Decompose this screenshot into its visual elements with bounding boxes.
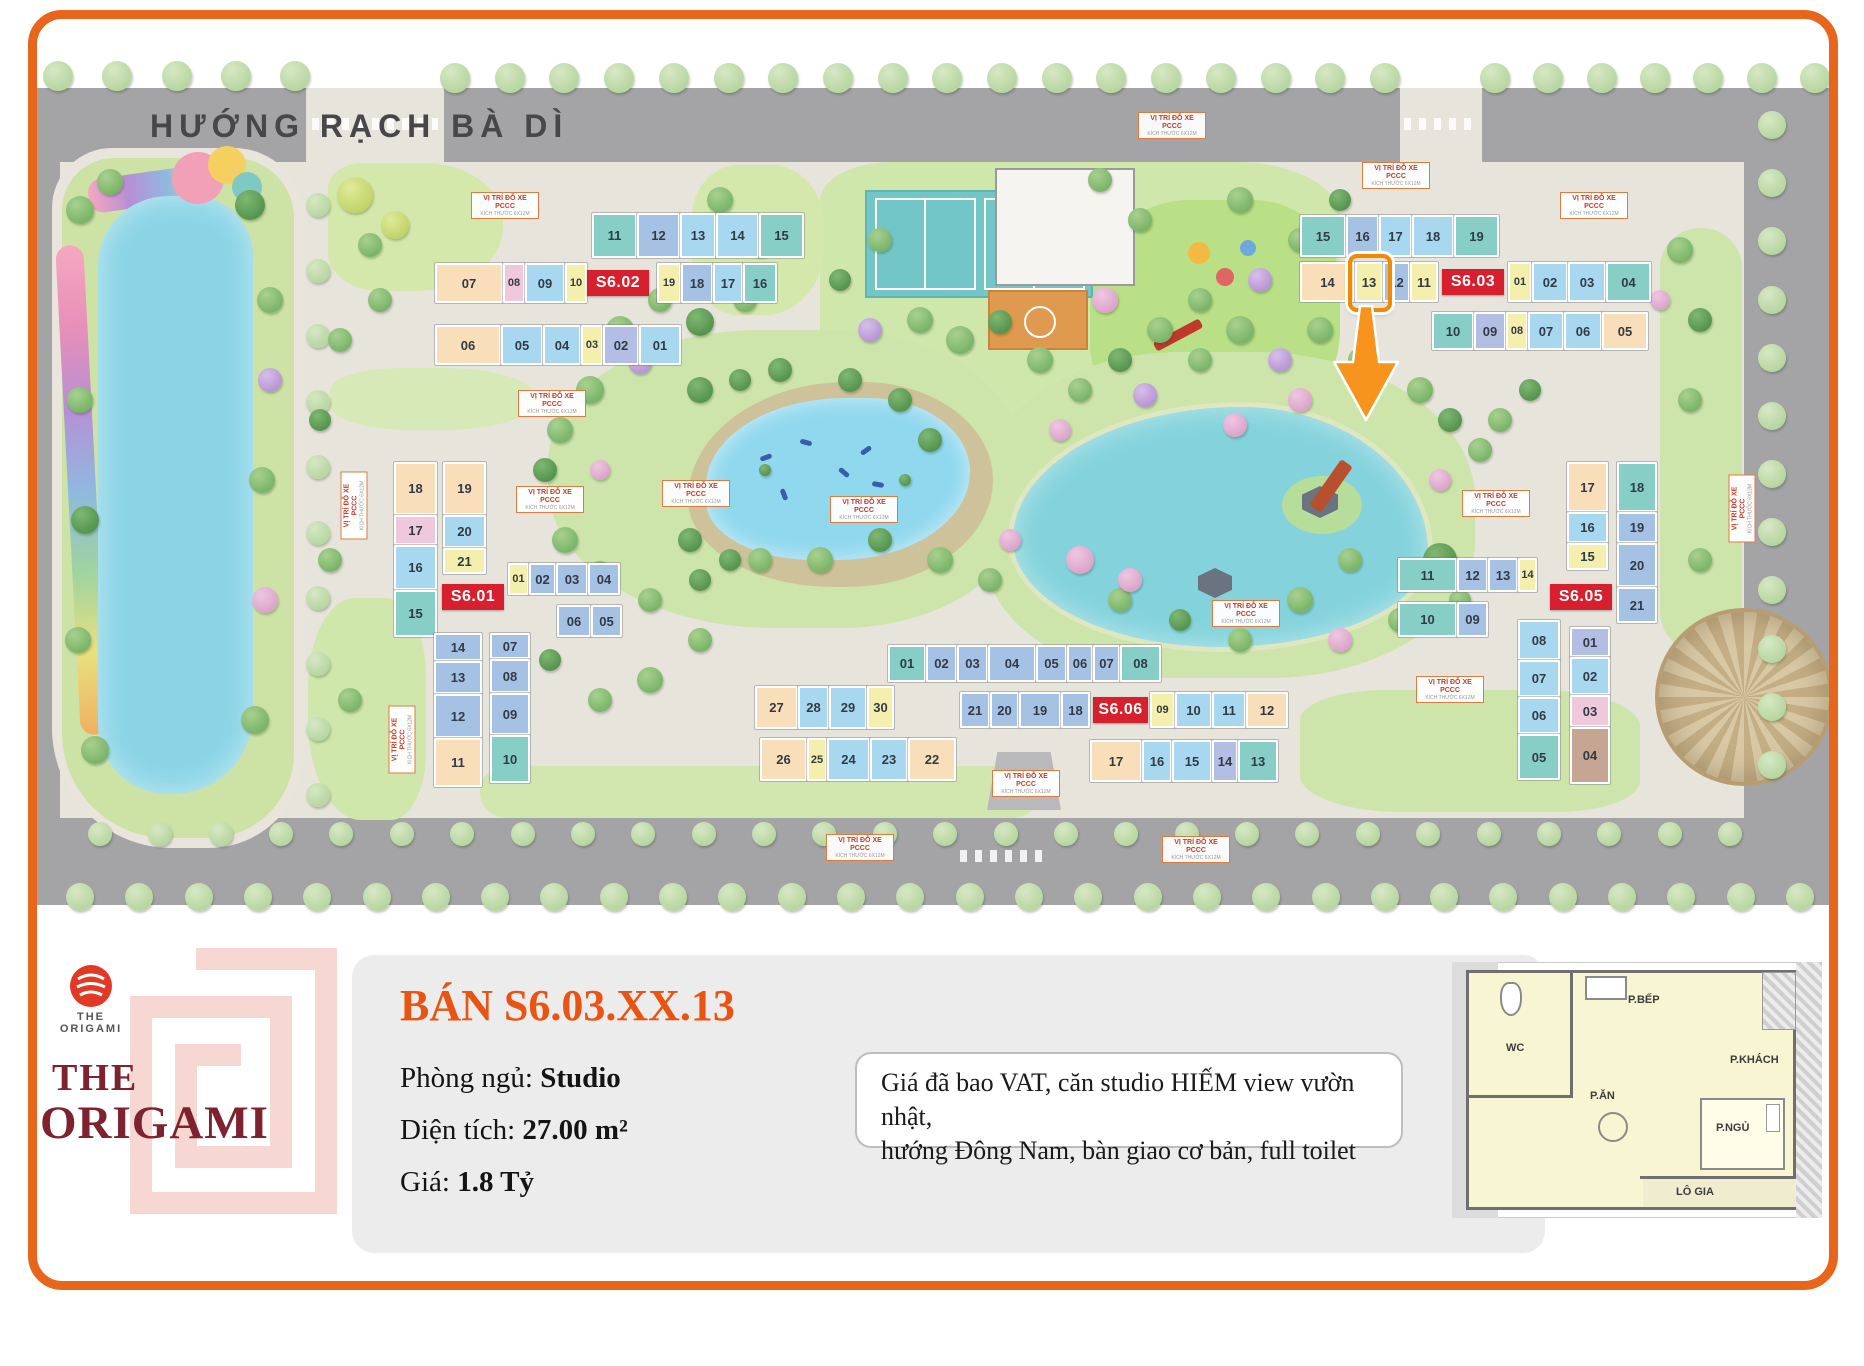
tree-icon [1678, 388, 1702, 412]
unit-cell-S6.05-11[interactable]: 11 [1398, 558, 1457, 592]
tree-icon [1147, 317, 1173, 343]
tree-icon [1786, 883, 1814, 911]
tree-icon [539, 649, 561, 671]
tree-icon [511, 822, 535, 846]
unit-cell-S6.01-05[interactable]: 05 [591, 605, 622, 637]
unit-cell-S6.01-15[interactable]: 15 [394, 590, 437, 637]
unit-cell-S6.05-10[interactable]: 10 [1398, 602, 1457, 637]
unit-cell-S6.02-18[interactable]: 18 [681, 263, 713, 303]
unit-cell-S6.01-17[interactable]: 17 [394, 515, 437, 545]
field-bedrooms: Phòng ngủ: Studio [400, 1062, 621, 1095]
unit-cell-S6.06-05[interactable]: 05 [1036, 645, 1067, 682]
unit-cell-S6.06-24[interactable]: 24 [827, 738, 870, 781]
unit-cell-S6.06-02[interactable]: 02 [926, 645, 957, 682]
tree-icon [604, 63, 634, 93]
unit-cell-S6.03-04[interactable]: 04 [1606, 262, 1651, 302]
tree-icon [600, 883, 628, 911]
tree-icon [1800, 63, 1830, 93]
unit-cell-S6.01-20[interactable]: 20 [443, 515, 486, 548]
flowering-tree-icon [590, 460, 610, 480]
tree-icon [306, 652, 330, 676]
tree-icon [692, 822, 716, 846]
unit-cell-S6.05-18[interactable]: 18 [1617, 462, 1657, 512]
unit-cell-S6.05-07[interactable]: 07 [1518, 660, 1560, 697]
unit-cell-S6.06-06[interactable]: 06 [1067, 645, 1093, 682]
tree-icon [1015, 883, 1043, 911]
unit-cell-S6.01-13[interactable]: 13 [434, 661, 482, 694]
tree-icon [946, 326, 974, 354]
unit-cell-S6.06-23[interactable]: 23 [870, 738, 908, 781]
tree-icon [1667, 237, 1693, 263]
tree-icon [65, 627, 91, 653]
tree-icon [1108, 348, 1132, 372]
tree-icon [1430, 883, 1458, 911]
highlighted-unit-ring[interactable] [1348, 254, 1392, 312]
tree-icon [1088, 168, 1112, 192]
unit-cell-S6.01-03[interactable]: 03 [556, 563, 588, 595]
tree-icon [162, 61, 192, 91]
tree-icon [1758, 751, 1786, 779]
tree-icon [1188, 348, 1212, 372]
tree-icon [97, 169, 123, 195]
tree-icon [1371, 883, 1399, 911]
tree-icon [306, 783, 330, 807]
tree-icon [1042, 63, 1072, 93]
tree-icon [209, 822, 233, 846]
tree-icon [571, 822, 595, 846]
tree-icon [768, 358, 792, 382]
tree-icon [1169, 609, 1191, 631]
tree-icon [638, 588, 662, 612]
unit-cell-S6.05-09[interactable]: 09 [1457, 602, 1488, 637]
unit-cell-S6.03-07[interactable]: 07 [1528, 312, 1564, 350]
tree-icon [689, 569, 711, 591]
park-patch [1660, 228, 1742, 652]
tree-icon [1151, 63, 1181, 93]
flowering-tree-icon [1328, 628, 1352, 652]
unit-cell-S6.05-01[interactable]: 01 [1570, 627, 1610, 657]
flowering-tree-icon [1268, 348, 1292, 372]
unit-cell-S6.05-06[interactable]: 06 [1518, 697, 1560, 734]
tree-icon [1758, 286, 1786, 314]
tree-icon [1074, 883, 1102, 911]
flowering-tree-icon [1288, 388, 1312, 412]
unit-cell-S6.03-01[interactable]: 01 [1508, 262, 1532, 302]
tree-icon [318, 548, 342, 572]
unit-cell-S6.06-01[interactable]: 01 [888, 645, 926, 682]
tree-icon [888, 388, 912, 412]
unit-cell-S6.01-14[interactable]: 14 [434, 633, 482, 661]
tree-icon [1480, 63, 1510, 93]
unit-cell-S6.06-03[interactable]: 03 [957, 645, 988, 682]
pccc-parking-label: VỊ TRÍ ĐỖ XE PCCCKÍCH THƯỚC 6X12M [518, 390, 586, 417]
unit-cell-S6.01-21[interactable]: 21 [443, 548, 486, 574]
unit-cell-S6.06-18[interactable]: 18 [1061, 692, 1090, 728]
flowering-tree-icon [1223, 413, 1247, 437]
unit-cell-S6.03-17[interactable]: 17 [1379, 215, 1412, 257]
field-price-value: 1.8 Tỷ [457, 1166, 534, 1198]
unit-cell-S6.03-05[interactable]: 05 [1602, 312, 1648, 350]
unit-cell-S6.06-20[interactable]: 20 [990, 692, 1019, 728]
field-price: Giá: 1.8 Tỷ [400, 1166, 534, 1199]
tree-icon [718, 883, 746, 911]
tree-icon [328, 328, 352, 352]
tree-icon [748, 548, 772, 572]
tree-icon [637, 667, 663, 693]
unit-cell-S6.05-02[interactable]: 02 [1570, 657, 1610, 695]
tree-icon [440, 63, 470, 93]
tree-icon [1068, 378, 1092, 402]
unit-cell-S6.02-17[interactable]: 17 [713, 263, 743, 303]
unit-cell-S6.05-21[interactable]: 21 [1617, 587, 1657, 623]
tree-icon [1188, 288, 1212, 312]
building-label-S6.03[interactable]: S6.03 [1442, 269, 1504, 295]
tree-icon [1658, 822, 1682, 846]
unit-cell-S6.03-03[interactable]: 03 [1568, 262, 1606, 302]
pccc-parking-label: VỊ TRÍ ĐỖ XE PCCCKÍCH THƯỚC 6X12M [1138, 112, 1206, 139]
unit-cell-S6.02-02[interactable]: 02 [603, 325, 639, 365]
flowering-tree-icon [1650, 290, 1670, 310]
field-area-value: 27.00 m² [522, 1114, 627, 1146]
tree-icon [1758, 169, 1786, 197]
tree-icon [547, 417, 573, 443]
pccc-parking-label: VỊ TRÍ ĐỖ XE PCCCKÍCH THƯỚC 6X12M [341, 472, 368, 540]
tree-icon [241, 706, 269, 734]
tree-icon [358, 233, 382, 257]
tree-icon [1688, 308, 1712, 332]
tree-icon [221, 61, 251, 91]
flowering-tree-icon [1092, 287, 1118, 313]
unit-cell-S6.05-14[interactable]: 14 [1518, 558, 1537, 592]
tree-icon [306, 259, 330, 283]
unit-cell-S6.01-01[interactable]: 01 [508, 563, 529, 595]
tree-icon [714, 63, 744, 93]
unit-cell-S6.06-30[interactable]: 30 [867, 686, 894, 729]
unit-cell-S6.03-09[interactable]: 09 [1474, 312, 1506, 350]
tree-icon [552, 527, 578, 553]
unit-cell-S6.02-13[interactable]: 13 [680, 213, 716, 258]
playground-equipment [1188, 242, 1210, 264]
tree-icon [1667, 883, 1695, 911]
tree-icon [807, 547, 833, 573]
unit-cell-S6.06-22[interactable]: 22 [908, 738, 956, 781]
logo-line-2: ORIGAMI [40, 1096, 269, 1150]
tree-icon [1519, 379, 1541, 401]
unit-cell-S6.02-15[interactable]: 15 [759, 213, 804, 258]
tree-icon [363, 883, 391, 911]
tree-icon [185, 883, 213, 911]
tree-icon [1054, 822, 1078, 846]
unit-cell-S6.06-26[interactable]: 26 [760, 738, 807, 781]
tree-icon [1727, 883, 1755, 911]
unit-cell-S6.01-16[interactable]: 16 [394, 545, 437, 590]
tree-icon [899, 474, 911, 486]
tree-icon [1468, 438, 1492, 462]
unit-cell-S6.06-15[interactable]: 15 [1172, 740, 1212, 782]
flowering-tree-icon [1248, 268, 1272, 292]
tree-icon [269, 822, 293, 846]
building-label-S6.01[interactable]: S6.01 [442, 584, 504, 610]
tree-icon [678, 528, 702, 552]
lake-left [98, 196, 253, 794]
tree-icon [1235, 822, 1259, 846]
unit-cell-S6.01-11[interactable]: 11 [434, 738, 482, 787]
tree-icon [1134, 883, 1162, 911]
tree-icon [1338, 548, 1362, 572]
tree-icon [1348, 348, 1372, 372]
tree-icon [1287, 587, 1313, 613]
crosswalk [960, 850, 1050, 862]
unit-cell-S6.01-06[interactable]: 06 [557, 605, 591, 637]
tree-icon [235, 190, 265, 220]
unit-cell-S6.03-11[interactable]: 11 [1410, 262, 1438, 302]
tree-icon [707, 187, 733, 213]
tree-icon [1128, 208, 1152, 232]
tree-icon [43, 61, 73, 91]
tree-icon [1227, 187, 1253, 213]
tree-icon [306, 193, 330, 217]
unit-cell-S6.03-16[interactable]: 16 [1346, 215, 1379, 257]
unit-cell-S6.01-10[interactable]: 10 [490, 735, 530, 783]
tree-icon [823, 63, 853, 93]
tree-icon [659, 883, 687, 911]
tree-icon [1027, 347, 1053, 373]
unit-cell-S6.03-02[interactable]: 02 [1532, 262, 1568, 302]
tree-icon [688, 628, 712, 652]
unit-cell-S6.06-12[interactable]: 12 [1246, 692, 1288, 728]
unit-cell-S6.02-09[interactable]: 09 [525, 263, 565, 303]
floorplan-room-label: P.NGỦ [1716, 1122, 1749, 1134]
unit-cell-S6.03-08[interactable]: 08 [1506, 312, 1528, 350]
tree-icon [1747, 63, 1777, 93]
tree-icon [309, 409, 331, 431]
pccc-parking-label: VỊ TRÍ ĐỖ XE PCCCKÍCH THƯỚC 6X12M [1362, 162, 1430, 189]
tree-icon [306, 521, 330, 545]
unit-cell-S6.05-20[interactable]: 20 [1617, 543, 1657, 587]
field-area-label: Diện tích: [400, 1114, 515, 1146]
unit-cell-S6.05-15[interactable]: 15 [1567, 543, 1608, 570]
field-area: Diện tích: 27.00 m² [400, 1114, 628, 1147]
field-bedrooms-value: Studio [540, 1062, 621, 1094]
tree-icon [495, 63, 525, 93]
tree-icon [280, 61, 310, 91]
tree-icon [1758, 111, 1786, 139]
building-label-S6.06[interactable]: S6.06 [1093, 697, 1148, 723]
tree-icon [81, 736, 109, 764]
unit-cell-S6.06-11[interactable]: 11 [1212, 692, 1246, 728]
tree-icon [837, 883, 865, 911]
floorplan-room-label: P.ĂN [1590, 1090, 1615, 1102]
tree-icon [729, 369, 751, 391]
tree-icon [1407, 377, 1433, 403]
tree-icon [1370, 63, 1400, 93]
tree-icon [1758, 402, 1786, 430]
tree-icon [1438, 408, 1462, 432]
clubhouse-footprint [995, 168, 1135, 286]
unit-cell-S6.05-12[interactable]: 12 [1457, 558, 1488, 592]
pccc-parking-label: VỊ TRÍ ĐỖ XE PCCCKÍCH THƯỚC 6X12M [1162, 836, 1230, 863]
unit-cell-S6.03-15[interactable]: 15 [1300, 215, 1346, 257]
unit-cell-S6.05-19[interactable]: 19 [1617, 512, 1657, 543]
tree-icon [67, 387, 93, 413]
tree-icon [1226, 316, 1254, 344]
unit-cell-S6.06-19[interactable]: 19 [1019, 692, 1061, 728]
unit-cell-S6.05-08[interactable]: 08 [1518, 620, 1560, 660]
unit-cell-S6.02-07[interactable]: 07 [435, 263, 503, 303]
tree-icon [1261, 63, 1291, 93]
note-box: Giá đã bao VAT, căn studio HIẾM view vườ… [855, 1052, 1403, 1148]
dome-structure [1655, 608, 1833, 786]
tree-icon [752, 822, 776, 846]
unit-cell-S6.06-21[interactable]: 21 [960, 692, 990, 728]
tree-icon [778, 883, 806, 911]
pccc-parking-label: VỊ TRÍ ĐỖ XE PCCCKÍCH THƯỚC 6X12M [389, 706, 416, 774]
unit-cell-S6.02-12[interactable]: 12 [637, 213, 680, 258]
floorplan-room-label: LÔ GIA [1676, 1186, 1714, 1198]
unit-cell-S6.01-12[interactable]: 12 [434, 694, 482, 738]
flowering-tree-icon [258, 368, 282, 392]
floorplan-room-label: WC [1506, 1042, 1524, 1054]
crosswalk [1404, 118, 1478, 130]
tree-icon [1206, 63, 1236, 93]
unit-cell-S6.06-10[interactable]: 10 [1175, 692, 1212, 728]
unit-cell-S6.06-27[interactable]: 27 [755, 686, 798, 729]
field-bedrooms-label: Phòng ngủ: [400, 1062, 533, 1094]
building-label-S6.05[interactable]: S6.05 [1550, 584, 1612, 610]
tree-icon [719, 549, 741, 571]
unit-cell-S6.06-09[interactable]: 09 [1150, 692, 1175, 728]
unit-cell-S6.05-17[interactable]: 17 [1567, 462, 1608, 512]
unit-cell-S6.05-16[interactable]: 16 [1567, 512, 1608, 543]
tree-icon [1489, 883, 1517, 911]
floorplan-room-label: P.KHÁCH [1730, 1054, 1779, 1066]
unit-cell-S6.02-05[interactable]: 05 [501, 325, 543, 365]
flowering-tree-icon [1118, 568, 1142, 592]
unit-cell-S6.01-08[interactable]: 08 [490, 659, 530, 693]
tree-icon [588, 688, 612, 712]
unit-cell-S6.05-04[interactable]: 04 [1570, 727, 1610, 784]
unit-cell-S6.06-07[interactable]: 07 [1093, 645, 1120, 682]
tree-icon [71, 506, 99, 534]
unit-cell-S6.03-19[interactable]: 19 [1454, 215, 1499, 257]
unit-cell-S6.06-25[interactable]: 25 [807, 738, 827, 781]
unit-cell-S6.03-14[interactable]: 14 [1300, 262, 1355, 302]
tree-icon [687, 377, 713, 403]
playground-equipment [1240, 240, 1256, 256]
unit-cell-S6.02-16[interactable]: 16 [743, 263, 777, 303]
tree-icon [1549, 883, 1577, 911]
tree-icon [759, 464, 771, 476]
tree-icon [987, 63, 1017, 93]
unit-cell-S6.03-06[interactable]: 06 [1564, 312, 1602, 350]
tree-icon [481, 883, 509, 911]
pccc-parking-label: VỊ TRÍ ĐỖ XE PCCCKÍCH THƯỚC 6X12M [1560, 192, 1628, 219]
tree-icon [1758, 344, 1786, 372]
flowering-tree-icon [252, 587, 278, 613]
tree-icon [1758, 460, 1786, 488]
listing-title: BÁN S6.03.XX.13 [400, 980, 735, 1031]
unit-cell-S6.06-29[interactable]: 29 [829, 686, 867, 729]
basketball-court-circle [1024, 306, 1056, 338]
flowering-tree-icon [1066, 546, 1094, 574]
tree-icon [988, 310, 1012, 334]
unit-cell-S6.05-13[interactable]: 13 [1488, 558, 1518, 592]
tree-icon [422, 883, 450, 911]
unit-cell-S6.03-18[interactable]: 18 [1412, 215, 1454, 257]
unit-cell-S6.01-07[interactable]: 07 [490, 633, 530, 659]
tree-icon [1228, 628, 1252, 652]
unit-cell-S6.02-03[interactable]: 03 [581, 325, 603, 365]
unit-cell-S6.06-04[interactable]: 04 [988, 645, 1036, 682]
tree-icon [927, 547, 953, 573]
pccc-parking-label: VỊ TRÍ ĐỖ XE PCCCKÍCH THƯỚC 6X12M [830, 496, 898, 523]
tree-icon [381, 211, 409, 239]
unit-cell-S6.01-04[interactable]: 04 [588, 563, 620, 595]
tree-icon [907, 307, 933, 333]
unit-cell-S6.02-19[interactable]: 19 [657, 263, 681, 303]
note-line-2: hướng Đông Nam, bàn giao cơ bản, full to… [881, 1134, 1377, 1168]
unit-cell-S6.06-13[interactable]: 13 [1238, 740, 1278, 782]
tree-icon [1416, 822, 1440, 846]
road-title: HƯỚNG RẠCH BÀ DÌ [150, 108, 568, 145]
unit-cell-S6.03-10[interactable]: 10 [1432, 312, 1474, 350]
unit-cell-S6.06-16[interactable]: 16 [1142, 740, 1172, 782]
unit-cell-S6.06-14[interactable]: 14 [1212, 740, 1238, 782]
tree-icon [125, 883, 153, 911]
unit-cell-S6.02-14[interactable]: 14 [716, 213, 759, 258]
unit-cell-S6.05-05[interactable]: 05 [1518, 734, 1560, 780]
tree-icon [533, 458, 557, 482]
tree-icon [659, 63, 689, 93]
tree-icon [1329, 189, 1351, 211]
pccc-parking-label: VỊ TRÍ ĐỖ XE PCCCKÍCH THƯỚC 6X12M [516, 486, 584, 513]
tree-icon [838, 368, 862, 392]
tree-icon [829, 269, 851, 291]
unit-cell-S6.02-11[interactable]: 11 [592, 213, 637, 258]
flowering-tree-icon [1049, 419, 1071, 441]
origami-circle-icon [68, 963, 114, 1009]
unit-cell-S6.06-08[interactable]: 08 [1120, 645, 1161, 682]
unit-cell-S6.02-08[interactable]: 08 [503, 263, 525, 303]
playground-equipment [1216, 268, 1234, 286]
tree-icon [1587, 63, 1617, 93]
unit-cell-S6.01-02[interactable]: 02 [529, 563, 556, 595]
flowering-tree-icon [1133, 383, 1157, 407]
unit-cell-S6.02-06[interactable]: 06 [435, 325, 501, 365]
unit-cell-S6.02-01[interactable]: 01 [639, 325, 681, 365]
tree-icon [1718, 822, 1742, 846]
building-label-S6.02[interactable]: S6.02 [587, 270, 649, 296]
unit-cell-S6.01-09[interactable]: 09 [490, 693, 530, 735]
unit-cell-S6.06-28[interactable]: 28 [798, 686, 829, 729]
unit-cell-S6.05-03[interactable]: 03 [1570, 695, 1610, 727]
pccc-parking-label: VỊ TRÍ ĐỖ XE PCCCKÍCH THƯỚC 6X12M [1729, 475, 1756, 543]
tree-icon [337, 177, 373, 213]
tree-icon [878, 63, 908, 93]
unit-cell-S6.06-17[interactable]: 17 [1090, 740, 1142, 782]
flowering-tree-icon [999, 529, 1021, 551]
unit-cell-S6.02-10[interactable]: 10 [565, 263, 587, 303]
tree-icon [1477, 822, 1501, 846]
unit-cell-S6.01-19[interactable]: 19 [443, 462, 486, 515]
logo-tiny-bottom: ORIGAMI [1, 1023, 181, 1035]
unit-cell-S6.02-04[interactable]: 04 [543, 325, 581, 365]
unit-cell-S6.01-18[interactable]: 18 [394, 462, 437, 515]
tree-icon [1758, 635, 1786, 663]
logo-tiny-top: THE [1, 1011, 181, 1023]
tree-icon [66, 196, 94, 224]
tree-icon [868, 528, 892, 552]
